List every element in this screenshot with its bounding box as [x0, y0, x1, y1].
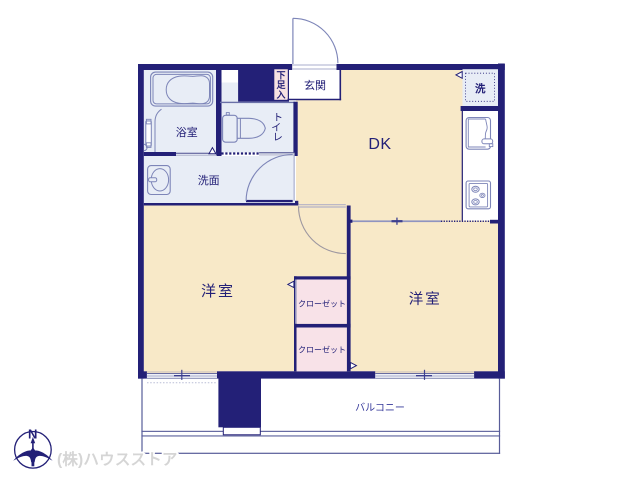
svg-text:バルコニー: バルコニー: [355, 402, 405, 414]
svg-text:玄関: 玄関: [304, 78, 326, 92]
svg-text:DK: DK: [368, 136, 391, 153]
svg-text:洋室: 洋室: [409, 291, 442, 308]
svg-text:(株)ハウスストア: (株)ハウスストア: [57, 450, 178, 469]
svg-text:足: 足: [276, 80, 286, 90]
svg-text:浴室: 浴室: [176, 125, 198, 139]
svg-text:クローゼット: クローゼット: [298, 299, 346, 309]
svg-text:洋室: 洋室: [201, 283, 235, 300]
svg-text:クローゼット: クローゼット: [298, 345, 346, 355]
svg-text:入: 入: [275, 90, 285, 100]
svg-text:下: 下: [276, 71, 285, 81]
svg-text:洗面: 洗面: [198, 174, 220, 187]
svg-text:レ: レ: [273, 133, 283, 144]
svg-text:洗: 洗: [475, 82, 486, 95]
